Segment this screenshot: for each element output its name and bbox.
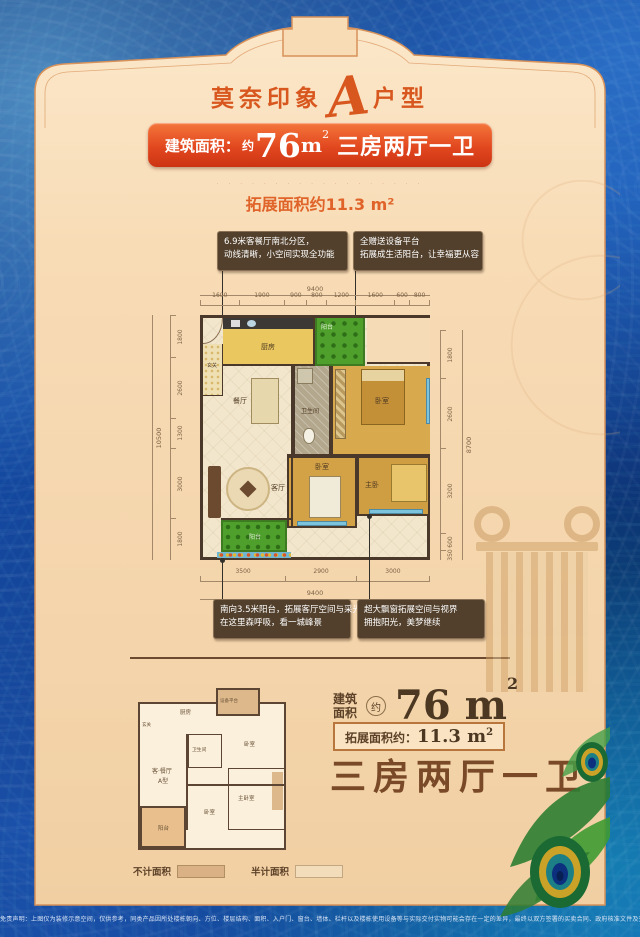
callout-line: 6.9米客餐厅南北分区， — [224, 236, 341, 249]
mini-label-master: 主卧室 — [238, 794, 255, 802]
dimension-segment: 2600 — [441, 378, 446, 447]
callout-line: 拥抱阳光，美梦继续 — [364, 617, 478, 630]
peacock-eye-icon — [530, 836, 590, 908]
callout-bay-window: 超大飘窗拓展空间与视界 拥抱阳光，美梦继续 — [357, 599, 485, 639]
legend-label: 不计面积 — [133, 864, 171, 878]
room-label-master: 主卧 — [365, 480, 379, 490]
mini-floor-plan: 设备平台 厨房 玄关 卫生间 卧室 主卧室 卧室 客·餐厅 A型 阳台 — [128, 688, 303, 860]
room-label-balcony-bottom: 阳台 — [249, 532, 261, 541]
dim-bottom-total: 9400 — [200, 580, 430, 600]
bed-icon — [391, 464, 427, 502]
dimension-segment: 2600 — [171, 357, 176, 417]
wall — [291, 366, 293, 528]
dimension-segment: 800 — [307, 300, 327, 305]
callout-line: 南向3.5米阳台，拓展客厅空间与采光 — [220, 604, 344, 617]
dimension-segment: 600 — [441, 533, 446, 550]
dimension-segment: 1800 — [441, 330, 446, 378]
mini-label-equip: 设备平台 — [220, 698, 238, 704]
callout-line: 超大飘窗拓展空间与视界 — [364, 604, 478, 617]
flower-box-icon — [217, 552, 291, 558]
leader-line — [369, 516, 370, 599]
banner-area-sup: 2 — [322, 128, 329, 141]
plan-outside-area — [367, 318, 430, 364]
room-label-bathroom: 卫生间 — [301, 406, 319, 415]
window-icon — [426, 378, 430, 424]
mini-label-foyer: 玄关 — [142, 722, 151, 728]
banner-area-value: 76 — [255, 129, 301, 162]
column-capital-watermark — [472, 492, 602, 692]
bay-window-icon — [297, 521, 347, 526]
dim-top-segments: 1600 1900 900 800 1200 1600 600 800 — [200, 290, 430, 306]
peacock-feather-decoration — [440, 667, 610, 917]
room-label-dining: 餐厅 — [233, 396, 247, 406]
mini-label-bed1: 卧室 — [244, 740, 255, 748]
summary-building-l2: 面积 — [333, 706, 357, 720]
bed-icon — [309, 476, 341, 518]
section-divider — [130, 657, 510, 659]
sofa-icon — [208, 466, 221, 518]
wall — [221, 518, 291, 520]
title-suffix: 户型 — [373, 79, 429, 113]
room-bedroom-mid: 卧室 — [287, 456, 357, 528]
dining-table-icon — [251, 378, 279, 424]
callout-line: 在这里森呼吸，看一城峰景 — [220, 617, 344, 630]
legend-no-count: 不计面积 — [133, 864, 225, 878]
mini-wardrobe-shaded — [272, 772, 283, 810]
toilet-icon — [303, 428, 315, 444]
mini-label-living-dining: 客·餐厅 — [152, 766, 172, 775]
legend-label: 半计面积 — [251, 864, 289, 878]
dimension-segment: 800 — [410, 300, 430, 305]
legend-swatch-dark — [177, 865, 225, 878]
dim-right-segments: 1800 2600 3200 600 350 — [440, 330, 446, 560]
title-prefix: 莫奈印象 — [211, 79, 323, 113]
dimension-segment: 900 — [285, 300, 307, 305]
callout-line: 动线清晰，小空间实现全功能 — [224, 249, 341, 262]
sink-icon — [247, 320, 256, 327]
mini-label-type: A型 — [158, 776, 168, 785]
wall — [287, 454, 430, 456]
rug-center-icon — [240, 481, 257, 498]
stove-icon — [231, 320, 240, 327]
kitchen-counter-icon — [223, 318, 313, 329]
mini-wall — [186, 784, 286, 786]
shower-icon — [297, 368, 313, 384]
rug-icon — [226, 467, 270, 511]
mini-label-balcony: 阳台 — [158, 824, 169, 832]
poster-page: 莫奈印象 A 户型 建筑面积： 约 76 m 2 三房两厅一卫 · · · · … — [0, 0, 640, 937]
area-legend: 不计面积 半计面积 — [133, 864, 343, 878]
approx-circle: 约 — [366, 696, 386, 716]
dimension-segment: 1200 — [327, 300, 356, 305]
dimension-segment: 1900 — [240, 300, 286, 305]
floor-plan: 厨房 玄关 阳台 卫生间 卧室 餐厅 — [200, 315, 430, 560]
column-abacus — [476, 542, 598, 551]
room-bathroom: 卫生间 — [293, 366, 331, 456]
leader-line — [222, 560, 223, 599]
dimension-segment: 3000 — [171, 448, 176, 518]
bed-pillows-icon — [362, 370, 404, 381]
bay-window-icon — [369, 509, 423, 514]
summary-building-l1: 建筑 — [333, 692, 357, 706]
area-banner: 建筑面积： 约 76 m 2 三房两厅一卫 — [148, 123, 492, 167]
dim-left-segments: 1800 2600 1300 3000 1800 — [170, 315, 176, 560]
mini-label-bed2: 卧室 — [204, 808, 215, 816]
expand-area-line: 拓展面积约11.3 m² — [0, 191, 640, 215]
dimension-segment: 1600 — [200, 300, 240, 305]
room-bedroom-top: 卧室 — [331, 366, 430, 456]
dim-left-total: 10500 — [152, 315, 164, 560]
room-master-bedroom: 主卧 — [357, 456, 430, 516]
title: 莫奈印象 A 户型 — [0, 76, 640, 117]
room-label-kitchen: 厨房 — [261, 342, 275, 352]
banner-approx: 约 — [242, 137, 254, 154]
dimension-segment: 1300 — [171, 418, 176, 449]
room-balcony-top: 阳台 — [315, 318, 365, 366]
dimension-segment: 350 — [441, 550, 446, 560]
callout-line: 拓展成生活阳台，让幸福更从容 — [360, 249, 476, 262]
entry-door-arc-icon — [203, 318, 223, 344]
room-label-balcony-top: 阳台 — [321, 322, 333, 331]
keystone-ornament — [283, 17, 357, 56]
faint-watermark-line: · · · · · · · · · · · · · · · · · · — [0, 181, 640, 188]
room-label-living: 客厅 — [271, 483, 285, 493]
dimension-segment: 3200 — [441, 448, 446, 533]
dimension-segment: 1800 — [171, 315, 176, 357]
volute-icon — [474, 506, 510, 542]
room-balcony-bottom: 阳台 — [221, 520, 287, 552]
tan-swirl-watermark — [430, 180, 620, 480]
callout-line: 全赠送设备平台 — [360, 236, 476, 249]
room-foyer: 玄关 — [203, 344, 223, 396]
dimension-segment: 600 — [395, 300, 410, 305]
peacock-eye-small-icon — [576, 742, 608, 782]
title-script-a: A — [325, 74, 371, 119]
dimension-segment: 1600 — [356, 300, 395, 305]
callout-equipment-platform: 全赠送设备平台 拓展成生活阳台，让幸福更从容 — [353, 231, 483, 271]
wardrobe-icon — [335, 369, 346, 439]
room-label-bedroom-top: 卧室 — [375, 396, 389, 406]
legend-swatch-light — [295, 865, 343, 878]
mini-label-bath: 卫生间 — [192, 746, 206, 753]
dimension-segment: 1800 — [171, 518, 176, 560]
room-label-bedroom-mid: 卧室 — [315, 462, 329, 472]
volute-icon — [564, 506, 600, 542]
banner-area-unit: m — [301, 133, 322, 157]
banner-rooms: 三房两厅一卫 — [337, 129, 475, 161]
callout-dining-hall: 6.9米客餐厅南北分区， 动线清晰，小空间实现全功能 — [217, 231, 348, 271]
legend-half-count: 半计面积 — [251, 864, 343, 878]
expand-label: 拓展面积约： — [345, 729, 417, 746]
summary-building-label: 建筑 面积 — [333, 692, 357, 721]
room-kitchen: 厨房 — [223, 318, 315, 366]
mini-label-kitchen: 厨房 — [180, 708, 191, 716]
mini-wall — [186, 734, 188, 830]
callout-south-balcony: 南向3.5米阳台，拓展客厅空间与采光 在这里森呼吸，看一城峰景 — [213, 599, 351, 639]
banner-label: 建筑面积： — [165, 135, 240, 156]
room-label-foyer: 玄关 — [207, 362, 217, 369]
